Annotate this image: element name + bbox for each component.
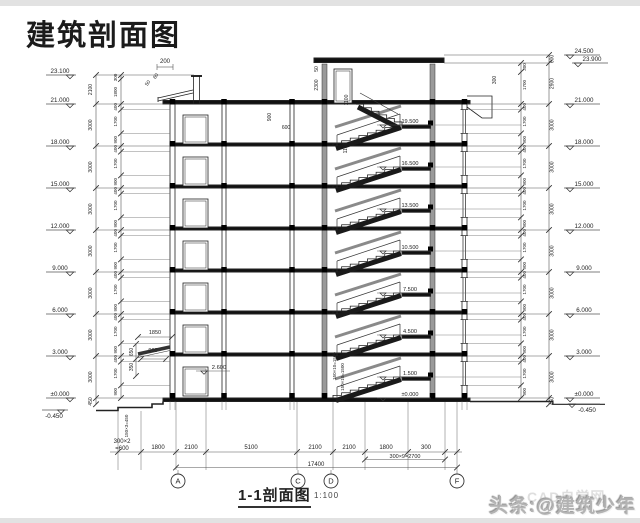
beam-section <box>170 225 176 231</box>
dim-label: =600 <box>115 446 129 452</box>
chain-label: 1700 <box>522 326 527 337</box>
chain-label: 1700 <box>113 116 118 127</box>
beam-section <box>430 267 436 273</box>
level-symbol <box>566 55 574 59</box>
chain-label: 1700 <box>522 242 527 253</box>
annotation-label: 50 <box>144 79 152 87</box>
chain-label: 400 <box>113 229 118 237</box>
cornice <box>467 96 492 118</box>
annotation-label: 50 <box>314 66 320 72</box>
return-flight <box>335 190 401 211</box>
level-symbol <box>66 314 74 318</box>
beam-section <box>289 393 295 399</box>
beam-section <box>430 99 436 105</box>
beam-section <box>322 99 328 105</box>
chain-label: 3000 <box>88 329 94 340</box>
chain-label: 450 <box>88 397 94 406</box>
mid-landing <box>402 293 431 296</box>
beam-section <box>430 183 436 189</box>
door <box>183 241 208 270</box>
level-symbol <box>66 230 74 234</box>
elevation-label: 21.000 <box>51 97 70 104</box>
stair-wall <box>430 64 435 398</box>
chain-label: 1800 <box>113 86 118 97</box>
chain-label: 900 <box>522 261 527 269</box>
level-symbol <box>66 146 74 150</box>
level-symbol <box>66 75 74 79</box>
level-symbol <box>566 272 574 276</box>
return-flight <box>335 274 401 295</box>
door <box>183 283 208 312</box>
beam-section <box>289 351 295 357</box>
mid-landing <box>402 125 431 128</box>
beam-section <box>289 309 295 315</box>
beam-section <box>289 267 295 273</box>
beam-section <box>289 225 295 231</box>
grid-bubble-label: F <box>455 477 460 486</box>
beam-section <box>289 99 295 105</box>
chain-label: 3000 <box>550 203 556 214</box>
beam-section <box>170 183 176 189</box>
elevation-label: 23.100 <box>51 68 70 75</box>
annotation-label: 1100 <box>343 142 349 153</box>
chain-label: 900 <box>113 177 118 185</box>
elevation-label: 2.600 <box>212 365 227 371</box>
chain-label: 900 <box>522 303 527 311</box>
elevation-label: 7.500 <box>403 287 417 293</box>
beam-section <box>221 267 227 273</box>
chain-label: 300 <box>522 63 527 71</box>
dim-label: 2100 <box>342 445 356 451</box>
elevation-label: 23.900 <box>583 56 602 63</box>
window-gap <box>461 278 469 302</box>
window-gap <box>461 236 469 260</box>
chain-label: 400 <box>113 103 118 111</box>
chain-label: 900 <box>113 135 118 143</box>
beam-section <box>462 99 468 105</box>
level-symbol <box>566 146 574 150</box>
floor-slab <box>170 311 467 314</box>
penthouse-roof-slab <box>314 58 444 63</box>
return-flight <box>335 232 401 253</box>
chain-label: 600 <box>550 55 556 64</box>
chain-label: 900 <box>113 303 118 311</box>
drawing-caption: 1-1剖面图 <box>238 484 311 508</box>
chain-label: 3000 <box>88 287 94 298</box>
elevation-label: 12.000 <box>575 223 594 230</box>
return-flight <box>335 316 401 337</box>
elevation-label: 9.000 <box>52 265 68 272</box>
beam-section <box>221 225 227 231</box>
level-symbol <box>566 398 574 402</box>
chain-label: 900 <box>522 387 527 395</box>
grid-bubble-label: A <box>175 477 180 486</box>
level-symbol <box>66 188 74 192</box>
beam-section <box>430 225 436 231</box>
dim-label: 300×2 <box>114 439 132 445</box>
level-symbol <box>566 188 574 192</box>
elevation-label: 6.000 <box>576 307 592 314</box>
ground-slab <box>163 398 470 402</box>
chain-label: 3000 <box>550 287 556 298</box>
annotation-label: 1100 <box>344 94 350 105</box>
chain-label: 400 <box>522 145 527 153</box>
chain-label: 400 <box>522 103 527 111</box>
beam-section <box>289 183 295 189</box>
elevation-label: 1.500 <box>403 371 417 377</box>
beam-section <box>322 267 328 273</box>
beam-section <box>430 309 436 315</box>
drawing-scale: 1:100 <box>314 491 339 500</box>
window-gap <box>461 110 469 134</box>
chain-label: 400 <box>522 271 527 279</box>
chain-label: 3000 <box>550 119 556 130</box>
dim-label: 300 <box>421 445 432 451</box>
beam-section <box>462 183 468 189</box>
chain-label: 900 <box>113 345 118 353</box>
dim-label: 17400 <box>308 462 325 468</box>
dim-label: 5100 <box>244 445 258 451</box>
dim-label: 300×9=2700 <box>390 454 421 460</box>
beam-section <box>462 141 468 147</box>
elevation-label: 4.500 <box>403 329 417 335</box>
floor-slab <box>170 227 467 230</box>
beam-section <box>322 309 328 315</box>
annotation-label: 150×10=1500 <box>340 363 345 391</box>
chain-label: 1700 <box>113 158 118 169</box>
elevation-label: 12.000 <box>51 223 70 230</box>
beam-section <box>430 141 436 147</box>
beam-section <box>322 183 328 189</box>
door <box>183 199 208 228</box>
level-symbol <box>566 230 574 234</box>
chain-label: 1700 <box>522 368 527 379</box>
chain-label: 3000 <box>550 329 556 340</box>
chain-label: 1700 <box>113 242 118 253</box>
beam-section <box>322 141 328 147</box>
floor-slab <box>170 185 467 188</box>
elevation-label: 15.000 <box>51 181 70 188</box>
article-page: 建筑剖面图 2100300030003000300030003000300045… <box>0 0 640 523</box>
beam-section <box>170 99 176 105</box>
elevation-label: 21.000 <box>575 97 594 104</box>
elevation-label: 3.000 <box>52 349 68 356</box>
elevation-label: 13.500 <box>401 203 418 209</box>
beam-section <box>221 393 227 399</box>
elevation-label: ±0.000 <box>575 391 594 398</box>
chain-label: 900 <box>522 219 527 227</box>
beam-section <box>170 351 176 357</box>
beam-section <box>221 141 227 147</box>
beam-section <box>462 393 468 399</box>
dim-label: 1800 <box>151 445 165 451</box>
chain-label: 900 <box>522 345 527 353</box>
floor-slab <box>170 353 467 356</box>
elevation-label: 3.000 <box>576 349 592 356</box>
beam-section <box>322 393 328 399</box>
chain-label: 900 <box>113 387 118 395</box>
floor-slab <box>170 143 467 146</box>
building-section-drawing: 2100300030003000300030003000300045030018… <box>0 0 640 523</box>
beam-section <box>462 225 468 231</box>
chain-label: 1700 <box>522 284 527 295</box>
beam-section <box>462 267 468 273</box>
chain-label: 300 <box>113 73 118 81</box>
chain-label: 400 <box>522 355 527 363</box>
level-symbol <box>66 272 74 276</box>
level-symbol <box>566 356 574 360</box>
chain-label: 2900 <box>550 78 556 89</box>
dim-label: 2100 <box>308 445 322 451</box>
beam-section <box>221 99 227 105</box>
elevation-label: 10.500 <box>401 245 418 251</box>
beam-section <box>221 183 227 189</box>
chain-label: 400 <box>522 229 527 237</box>
chain-label: 400 <box>522 187 527 195</box>
annotation-label: 900 <box>267 113 273 122</box>
elevation-label: ±0.000 <box>51 391 70 398</box>
annotation-label: 350 <box>129 363 135 372</box>
dim-label: 2100 <box>184 445 198 451</box>
elevation-label: 9.000 <box>576 265 592 272</box>
beam-section <box>170 309 176 315</box>
elevation-label: 15.000 <box>575 181 594 188</box>
window-gap <box>461 194 469 218</box>
beam-section <box>170 141 176 147</box>
chain-label: 400 <box>113 355 118 363</box>
floor-slab <box>170 269 467 272</box>
annotation-label: 60 <box>152 72 160 80</box>
annotation-label: 2300 <box>314 79 320 90</box>
stair-wall <box>322 64 327 398</box>
chain-label: 400 <box>113 271 118 279</box>
chain-label: 3000 <box>88 161 94 172</box>
chain-label: 2100 <box>88 84 94 95</box>
level-symbol <box>66 356 74 360</box>
annotation-label: 300 <box>492 76 498 85</box>
elevation-label: 19.500 <box>401 119 418 125</box>
mid-landing <box>402 335 431 338</box>
chain-label: 900 <box>113 261 118 269</box>
annotation-label: 600 <box>282 125 291 131</box>
mid-landing <box>402 377 431 380</box>
chain-label: 3000 <box>88 203 94 214</box>
chain-label: 1700 <box>113 284 118 295</box>
mid-landing <box>402 209 431 212</box>
elevation-label: 18.000 <box>51 139 70 146</box>
beam-section <box>221 351 227 357</box>
level-symbol <box>566 104 574 108</box>
window-gap <box>461 152 469 176</box>
elevation-label: 24.500 <box>575 48 594 55</box>
chain-label: 400 <box>522 313 527 321</box>
chain-label: 900 <box>522 177 527 185</box>
annotation-label: 650 <box>129 348 135 357</box>
chain-label: 450 <box>550 397 556 406</box>
elevation-label: 16.500 <box>401 161 418 167</box>
dim-label: 1800 <box>379 445 393 451</box>
level-symbol <box>574 63 582 67</box>
annotation-label: 150×3=450 <box>124 414 129 437</box>
door <box>183 157 208 186</box>
beam-section <box>322 225 328 231</box>
beam-section <box>430 393 436 399</box>
beam-section <box>170 267 176 273</box>
chain-label: 1700 <box>113 326 118 337</box>
structure-layer <box>96 58 605 411</box>
elevation-label: ±0.000 <box>401 392 418 398</box>
chain-label: 1700 <box>113 200 118 211</box>
chain-label: 1700 <box>522 200 527 211</box>
entrance-steps <box>96 402 163 411</box>
parapet <box>194 76 200 104</box>
chain-label: 1700 <box>522 116 527 127</box>
mid-landing <box>402 167 431 170</box>
elevation-label: 18.000 <box>575 139 594 146</box>
chain-label: 3000 <box>88 245 94 256</box>
chain-label: 3000 <box>550 245 556 256</box>
chain-label: 3000 <box>88 119 94 130</box>
beam-section <box>462 309 468 315</box>
roof-slab <box>163 101 470 105</box>
chain-label: 3000 <box>88 371 94 382</box>
chain-label: 400 <box>113 187 118 195</box>
chain-label: 900 <box>113 219 118 227</box>
chain-label: 900 <box>522 135 527 143</box>
chain-label: 1700 <box>522 158 527 169</box>
mid-landing <box>402 251 431 254</box>
annotation-label: 150×10=1500 <box>332 352 337 380</box>
level-symbol <box>66 398 74 402</box>
level-symbol <box>66 104 74 108</box>
beam-section <box>462 351 468 357</box>
chain-label: 1700 <box>522 79 527 90</box>
beam-section <box>221 309 227 315</box>
window-gap <box>461 362 469 386</box>
door <box>183 115 208 144</box>
annotation-label: 1850 <box>149 330 161 336</box>
beam-section <box>322 351 328 357</box>
level-symbol <box>566 314 574 318</box>
beam-section <box>430 351 436 357</box>
grid-bubble-label: D <box>328 477 334 486</box>
chain-label: 400 <box>113 145 118 153</box>
chain-label: 3000 <box>550 161 556 172</box>
elevation-label: -0.450 <box>578 407 596 414</box>
chain-label: 400 <box>113 313 118 321</box>
beam-section <box>289 141 295 147</box>
beam-section <box>170 393 176 399</box>
window-gap <box>461 320 469 344</box>
elevation-label: -0.450 <box>45 413 63 420</box>
annotation-label: 200 <box>160 59 171 65</box>
elevation-label: 6.000 <box>52 307 68 314</box>
door <box>183 325 208 354</box>
chain-label: 3000 <box>550 371 556 382</box>
watermark: 头条:@建筑少年 <box>489 491 636 518</box>
annotation-label: 900 <box>148 348 157 354</box>
chain-label: 1700 <box>113 368 118 379</box>
cut-flight <box>336 380 401 401</box>
